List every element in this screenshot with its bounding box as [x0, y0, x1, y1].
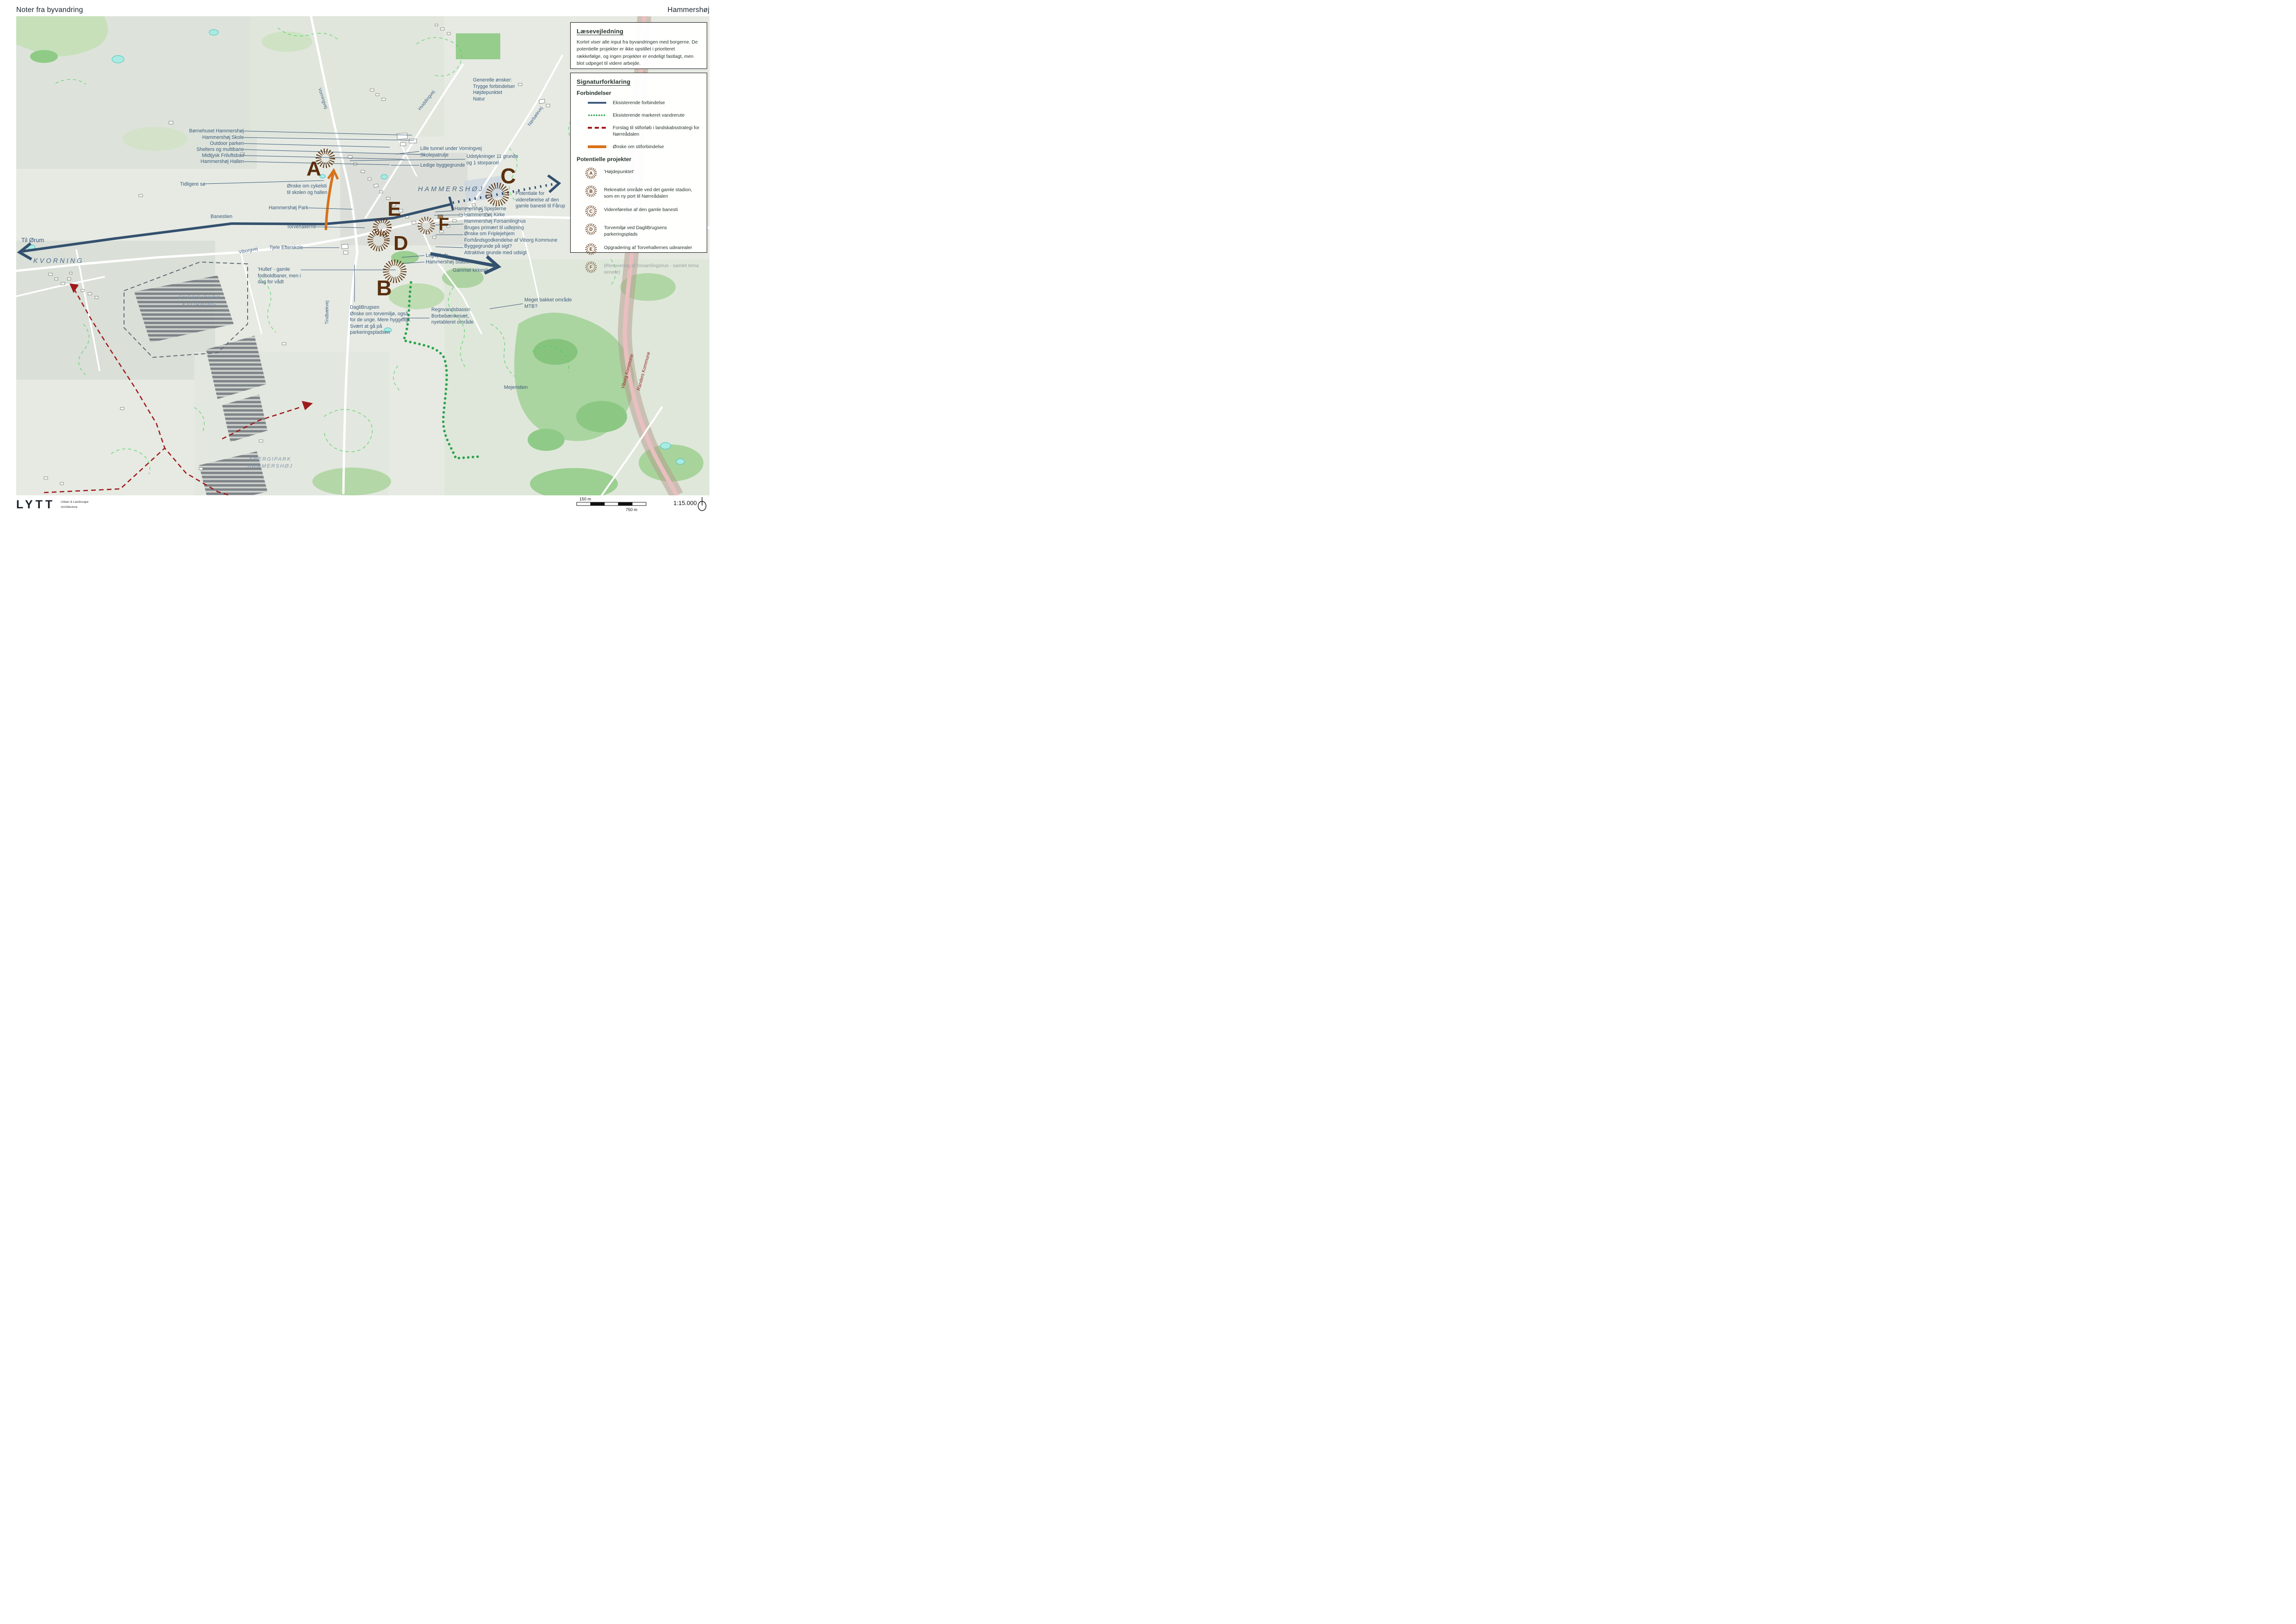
marker-letter-a: A	[306, 157, 321, 180]
marker-letter-b: B	[376, 276, 392, 300]
project-a-sunburst-icon: A	[584, 166, 598, 180]
project-d-sunburst-icon: D	[584, 222, 598, 236]
logo-subtitle-line2: Architecture	[61, 505, 88, 510]
label-cykelsti: Ønske om cykelsti til skolen og hallen	[287, 183, 327, 196]
legend-item-hiking: Eksisterende markeret vandrerute	[588, 112, 701, 119]
proposed-path-swatch	[588, 127, 606, 129]
legend-item-label: Eksisterende forbindelse	[613, 100, 665, 106]
legend-item-wished: Ønske om stiforbindelse	[588, 144, 701, 150]
project-item-e: E Opgradering af Torvehallernes udeareal…	[584, 242, 701, 256]
lytt-logo-subtitle: Urban & Landscape Architecture	[61, 500, 88, 509]
project-item-label: Rekreativt område ved det gamle stadion,…	[604, 184, 701, 200]
label-banestien: Banestien	[211, 214, 232, 220]
label-til-orum: Til Ørum	[21, 237, 44, 244]
label-hallen: Hammershøj Hallen	[200, 159, 244, 165]
reading-guide-panel: Læsevejledning Kortet viser alle input f…	[570, 22, 707, 69]
scale-ratio: 1:15.000	[673, 500, 697, 506]
svg-text:F: F	[590, 265, 592, 270]
label-daglibrugsen: DagliBrugsen Ønske om torvemiljø, også f…	[350, 305, 411, 336]
scale-label-150m: 150 m	[579, 497, 591, 501]
existing-connection-swatch	[588, 102, 606, 104]
label-torvehallerne: Torvehallerne	[286, 224, 316, 231]
reading-guide-title: Læsevejledning	[577, 28, 701, 35]
scale-label-750m: 750 m	[626, 507, 637, 512]
project-item-f: F (Renovering af forsamlingshus - samlet…	[584, 260, 701, 276]
label-udstykninger: Udstykninger 11 grunde og 1 storparcel	[467, 154, 518, 166]
scale-bar	[576, 502, 647, 506]
legend-item-label: Ønske om stiforbindelse	[613, 144, 664, 150]
project-item-b: B Rekreativt område ved det gamle stadio…	[584, 184, 701, 200]
lytt-logo-wordmark: LYTT	[16, 498, 55, 512]
label-spejderne: Hammershøj Spejderne	[454, 206, 506, 212]
label-regnvand: Regnvandsbassin Borbebænkesæt, nyetabler…	[431, 307, 473, 326]
legend-item-existing: Eksisterende forbindelse	[588, 100, 701, 106]
page: Noter fra byvandring Hammershøj	[0, 0, 726, 513]
marker-letter-d: D	[393, 232, 408, 255]
label-potentiale: Potentiale for videreførelse af den gaml…	[516, 191, 565, 210]
project-f-sunburst-icon: F	[584, 260, 598, 274]
marker-letter-c: C	[500, 164, 516, 188]
project-item-label: Opgradering af Torvehallernes udearealer	[604, 242, 692, 251]
reading-guide-body: Kortet viser alle input fra byvandringen…	[577, 39, 701, 68]
footer: LYTT Urban & Landscape Architecture 150 …	[0, 495, 726, 513]
project-item-label: Torvemiljø ved DagliBrugsens parkeringsp…	[604, 222, 701, 238]
place-energipark-kvorning: ENERGIPARK KVORNING	[175, 294, 224, 308]
road-tindbaekvej: Tindbækvej	[325, 300, 330, 324]
project-e-sunburst-icon: E	[584, 242, 598, 256]
label-generelle: Generelle ønsker: Trygge forbindelser Hø…	[473, 77, 515, 102]
project-item-d: D Torvemiljø ved DagliBrugsens parkering…	[584, 222, 701, 238]
legend-connections-title: Forbindelser	[577, 90, 701, 96]
legend-item-label: Forslag til stiforløb i landskabsstrateg…	[613, 125, 701, 138]
legend-projects-title: Potentielle projekter	[577, 156, 701, 162]
marker-letter-f: F	[438, 215, 449, 234]
label-legeplads: Legeplads	[426, 253, 448, 259]
hiking-route-swatch	[588, 114, 606, 116]
label-tidligere-so: Tidligere sø	[180, 181, 205, 188]
label-friluftsbad: Midtjysk Friluftsbad	[202, 153, 244, 159]
svg-text:D: D	[589, 227, 592, 232]
label-ledige: Ledige byggegrunde	[420, 162, 465, 169]
logo-subtitle-line1: Urban & Landscape	[61, 500, 88, 505]
svg-text:B: B	[589, 189, 592, 194]
svg-text:A: A	[589, 171, 592, 176]
marker-letter-e: E	[387, 198, 401, 220]
label-outdoor: Outdoor parken	[210, 141, 244, 147]
project-c-sunburst-icon: C	[584, 204, 598, 218]
wished-path-swatch	[588, 145, 606, 148]
label-shelters: Shelters og multibane	[197, 147, 244, 153]
place-hammershoj: HAMMERSHØJ	[418, 186, 484, 193]
page-place-title: Hammershøj	[667, 6, 709, 14]
label-mejeristien: Mejeristien	[504, 385, 528, 391]
label-ejendom-block: Hammershøj Forsamlinghus Bruges primært …	[464, 219, 557, 256]
project-item-a: A 'Højdepunktet'	[584, 166, 701, 180]
project-item-label: (Renovering af forsamlingshus - samlet t…	[604, 260, 701, 276]
label-park: Hammershøj Park	[269, 205, 308, 212]
label-bornehuset: Børnehuset Hammershøj	[189, 128, 244, 135]
label-skole: Hammershøj Skole	[202, 135, 244, 141]
legend-item-label: Eksisterende markeret vandrerute	[613, 112, 684, 119]
label-kirkesti: Gammel kirkesti	[453, 268, 488, 274]
project-b-sunburst-icon: B	[584, 184, 598, 198]
label-bakket: Meget bakket område MTB?	[524, 297, 572, 310]
svg-text:C: C	[589, 209, 592, 214]
project-item-label: 'Højdepunktet'	[604, 166, 634, 175]
project-item-label: Videreførelse af den gamle banesti	[604, 204, 678, 213]
svg-text:E: E	[590, 247, 593, 252]
legend-panel: Signaturforklaring Forbindelser Eksister…	[570, 73, 707, 253]
place-kvorning: KVORNING	[33, 257, 84, 265]
legend-title: Signaturforklaring	[577, 78, 701, 85]
page-title: Noter fra byvandring	[16, 6, 83, 14]
label-hullet: 'Hullet' - gamle fodboldbaner, men i dag…	[258, 267, 301, 286]
place-energipark-hammershoj: ENERGIPARK HAMMERSHØJ	[246, 456, 295, 470]
north-arrow-icon	[695, 496, 709, 512]
label-kirke: Hammershøj Kirke	[464, 212, 505, 219]
label-stadion: Hammershøj Stadion	[426, 259, 472, 266]
lytt-logo: LYTT Urban & Landscape Architecture	[16, 498, 88, 512]
project-item-c: C Videreførelse af den gamle banesti	[584, 204, 701, 218]
legend-item-proposed: Forslag til stiforløb i landskabsstrateg…	[588, 125, 701, 138]
label-tjele: Tjele Efterskole	[269, 245, 303, 251]
